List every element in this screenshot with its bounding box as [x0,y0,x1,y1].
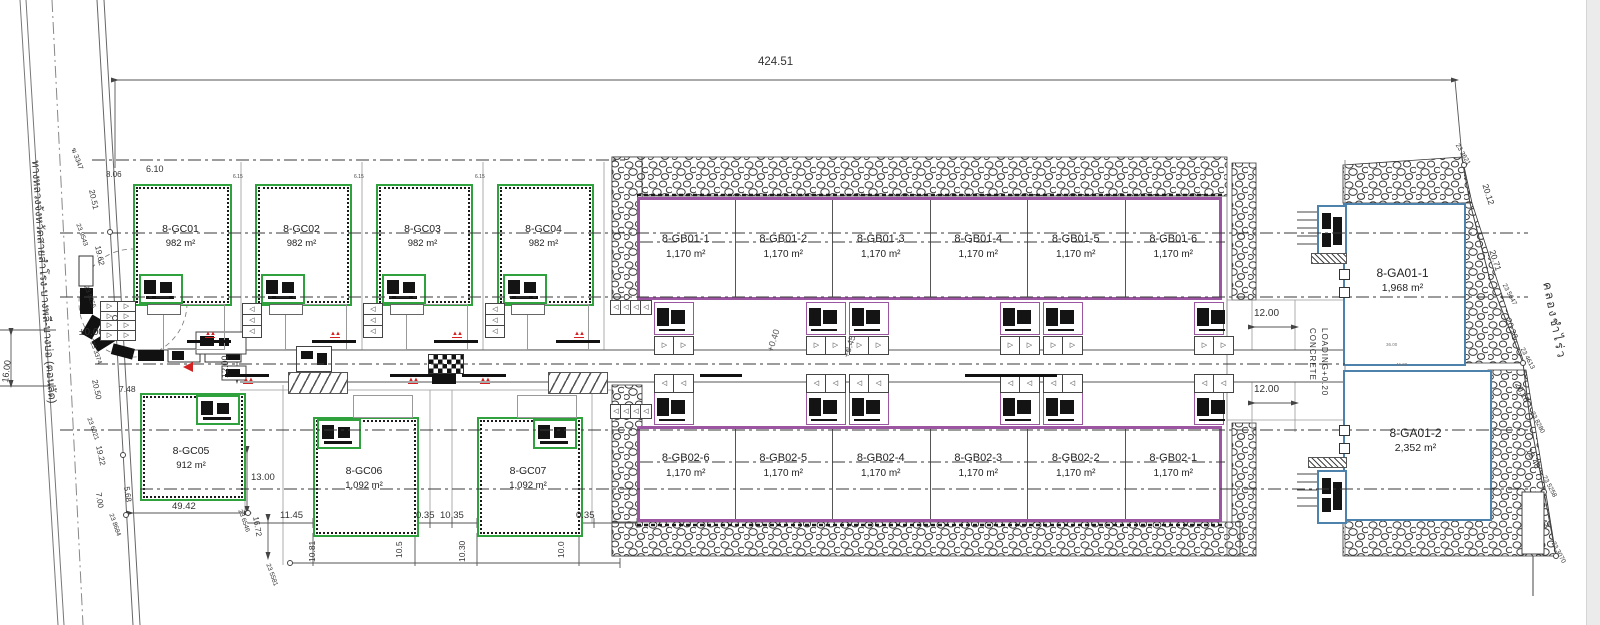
fixture-blob [389,296,417,299]
fixture-blob [146,296,174,299]
office-module [849,392,889,425]
fixture-blob [1005,419,1031,421]
annotation-label: 10.5 [395,541,404,558]
annotation-label: 10.35 [440,511,464,521]
ga1-ramp-hatch [1311,253,1347,264]
unit-name: 8-GA01-2 [1356,427,1476,440]
annotation-label: 13.00 [251,473,275,483]
ga1-column [1339,287,1350,298]
office-module [1000,302,1040,335]
office-annex [139,274,183,304]
fixture-blob [809,308,821,326]
hydrant-icon: ▲▲ [243,377,253,384]
fixture-blob [144,280,156,294]
annotation-label: 0.35 [416,511,435,521]
fixture-blob [657,398,669,416]
fixture-blob [203,417,231,420]
parking-stall: ▷ [868,336,889,355]
fixture-blob [538,425,550,439]
office-module [806,302,846,335]
driveway [353,395,413,418]
ga1-office-annex [1317,205,1347,257]
parking-stall: ◁ [868,374,889,393]
unit-name: 8-GC03 [363,224,483,236]
unit-area: 1,170 m² [1113,249,1233,260]
curb-bar [700,374,742,377]
driveway [517,395,577,418]
parking-stall: ◁ [825,374,846,393]
annotation-label: 0.35 [576,511,595,521]
office-module [849,302,889,335]
fixture-blob [1060,310,1074,324]
parking-stall: ◁ [363,325,383,338]
annotation-label: 10.30 [458,541,467,562]
guard-box [296,346,332,372]
fixture-blob [1211,310,1225,324]
office-module [1194,392,1224,425]
unit-area: 982 m² [121,239,241,249]
fixture-blob [1017,310,1031,324]
office-annex [317,419,361,449]
annotation-label: 6.15 [233,175,243,180]
hydrant-icon: ▲▲ [330,331,340,338]
fixture-blob [1048,329,1074,331]
unit-area: 1,968 m² [1343,283,1463,295]
office-module [1043,302,1083,335]
curb-bar [434,340,478,343]
fixture-blob [403,282,415,293]
parking-stall: ◁ [640,300,652,315]
parking-stall: ▷ [673,336,694,355]
fixture-blob [1003,308,1015,326]
ga1-column [1339,269,1350,280]
office-module [1043,392,1083,425]
fixture-blob [268,296,296,299]
guard-kiosk [428,354,464,374]
parking-stall: ▷ [1019,336,1040,355]
unit-name: 8-GC06 [304,466,424,478]
annotation-label: 8.06 [106,171,122,179]
unit-area: 2,352 m² [1356,443,1476,455]
parking-stall: ▷ [1062,336,1083,355]
annotation-label: 36.00 [1386,343,1397,348]
fixture-blob [866,400,880,414]
parking-stall: ◁ [485,325,505,338]
fixture-blob [1199,419,1225,421]
parking-stall: ◁ [673,374,694,393]
concrete-line1: CONCRETE [1308,328,1317,381]
annotation-label: 46.00 [1396,363,1407,368]
parking-stall: ◁ [640,404,652,419]
annotation-label: 10.0 [557,541,566,558]
parking-stall: ◁ [242,325,262,338]
annotation-label: 11.45 [280,511,303,521]
annex-porch [511,304,545,315]
hydrant-icon: ▲▲ [480,377,490,384]
unit-area: 1,170 m² [1113,468,1233,479]
fixture-blob [338,427,350,438]
fixture-blob [524,282,536,293]
fixture-blob [1048,419,1074,421]
annotation-label: 49.42 [172,502,196,512]
office-annex [196,395,240,425]
ga2-column [1339,443,1350,454]
fixture-blob [201,401,213,415]
unit-area: 982 m² [484,239,604,249]
unit-area: 982 m² [363,239,483,249]
hydrant-icon: ▲▲ [574,331,584,338]
annotation-label: 5.68 [122,486,132,503]
parking-stall: ▷ [1213,336,1234,355]
annotation-label: 7.00 [94,492,104,509]
office-annex [261,274,305,304]
fixture-blob [671,400,685,414]
ga2-ramp-hatch [1308,457,1347,468]
fixture-blob [854,329,880,331]
unit-area: 1,092 m² [304,481,424,491]
fixture-blob [671,310,685,324]
office-annex [503,274,547,304]
annotation-label: 7.48 [119,385,136,394]
fixture-blob [659,329,685,331]
fixture-blob [1003,398,1015,416]
annotation-label: 12.00 [1254,385,1279,395]
unit-name: 8-GC04 [484,224,604,236]
unit-name: 8-GB02-1 [1113,452,1233,464]
fixture-blob [540,441,568,444]
curb-bar [965,374,1057,377]
curb-bar [312,340,356,343]
fixture-blob [508,280,520,294]
unit-name: 8-GA01-1 [1343,267,1463,280]
parking-stall: ◁ [1213,374,1234,393]
unit-name: 8-GB01-6 [1113,233,1233,245]
fixture-blob [854,419,880,421]
fixture-blob [1017,400,1031,414]
office-module [1000,392,1040,425]
hydrant-icon: ▲▲ [205,331,215,338]
annotation-label: 6.15 [475,175,485,180]
parking-stall: ▷ [1194,336,1215,355]
parking-stall: ◁ [849,374,870,393]
unit-name: 8-GC02 [242,224,362,236]
office-annex [533,419,577,449]
fixture-blob [1199,329,1225,331]
parking-stall: ◁ [1062,374,1083,393]
fixture-blob [160,282,172,293]
annotation-label: 424.51 [758,57,793,69]
parking-stall: ▷ [654,336,675,355]
dim-424 [115,80,1462,168]
fixture-blob [1060,400,1074,414]
fixture-blob [1211,400,1225,414]
fixture-blob [852,398,864,416]
fixture-blob [852,308,864,326]
fixture-blob [282,282,294,293]
ga2-column [1339,425,1350,436]
parking-stall: ◁ [1194,374,1215,393]
fixture-blob [823,310,837,324]
fixture-blob [1005,329,1031,331]
barrier-block [432,374,456,384]
fixture-blob [217,403,229,414]
annex-porch [269,304,303,315]
annotation-label: 400 [1530,524,1537,536]
curb-bar [187,340,231,343]
zigzag-parking [548,372,608,394]
unit-area: 912 m² [131,461,251,471]
curb-bar [556,340,600,343]
office-module [654,392,694,425]
office-module [654,302,694,335]
parking-stall: ▷ [1000,336,1021,355]
hydrant-icon: ▲▲ [452,331,462,338]
fixture-blob [1197,308,1209,326]
concrete-line2: LOADING+0.20 [1320,328,1329,396]
parking-stall: ▷ [117,330,136,342]
unit-name: 8-GC01 [121,224,241,236]
concrete-loading-label: CONCRETE LOADING+0.20 [1306,328,1330,428]
fixture-blob [809,398,821,416]
annex-porch [390,304,424,315]
hydrant-icon: ▲▲ [408,377,418,384]
office-module [806,392,846,425]
fixture-blob [659,419,685,421]
unit-area: 1,092 m² [468,481,588,491]
fixture-blob [324,441,352,444]
fixture-blob [811,329,837,331]
unit-area: 982 m² [242,239,362,249]
fixture-blob [554,427,566,438]
ga2-office-annex [1317,470,1347,524]
parking-stall: ▷ [806,336,827,355]
fixture-blob [322,425,334,439]
fixture-blob [1197,398,1209,416]
site-plan-canvas: CONCRETE LOADING+0.20 const data = JSON.… [0,0,1600,625]
annotation-label: 10.81 [308,541,317,562]
fixture-blob [657,308,669,326]
fixture-blob [510,296,538,299]
office-annex [382,274,426,304]
annex-porch [147,304,181,315]
annotation-label: 6.15 [354,175,364,180]
zigzag-parking [288,372,348,394]
annotation-label: 12.00 [1254,309,1279,319]
fixture-blob [866,310,880,324]
office-module [1194,302,1224,335]
parking-stall: ◁ [654,374,675,393]
fixture-blob [823,400,837,414]
parking-stall: ▷ [1043,336,1064,355]
viewer-edge-strip [1586,0,1600,625]
annotation-label: 6.10 [146,165,164,174]
fixture-blob [811,419,837,421]
parking-stall: ◁ [806,374,827,393]
unit-name: 8-GC05 [131,446,251,458]
fixture-blob [1046,308,1058,326]
fixture-blob [1046,398,1058,416]
fixture-blob [266,280,278,294]
unit-name: 8-GC07 [468,466,588,478]
fixture-blob [387,280,399,294]
